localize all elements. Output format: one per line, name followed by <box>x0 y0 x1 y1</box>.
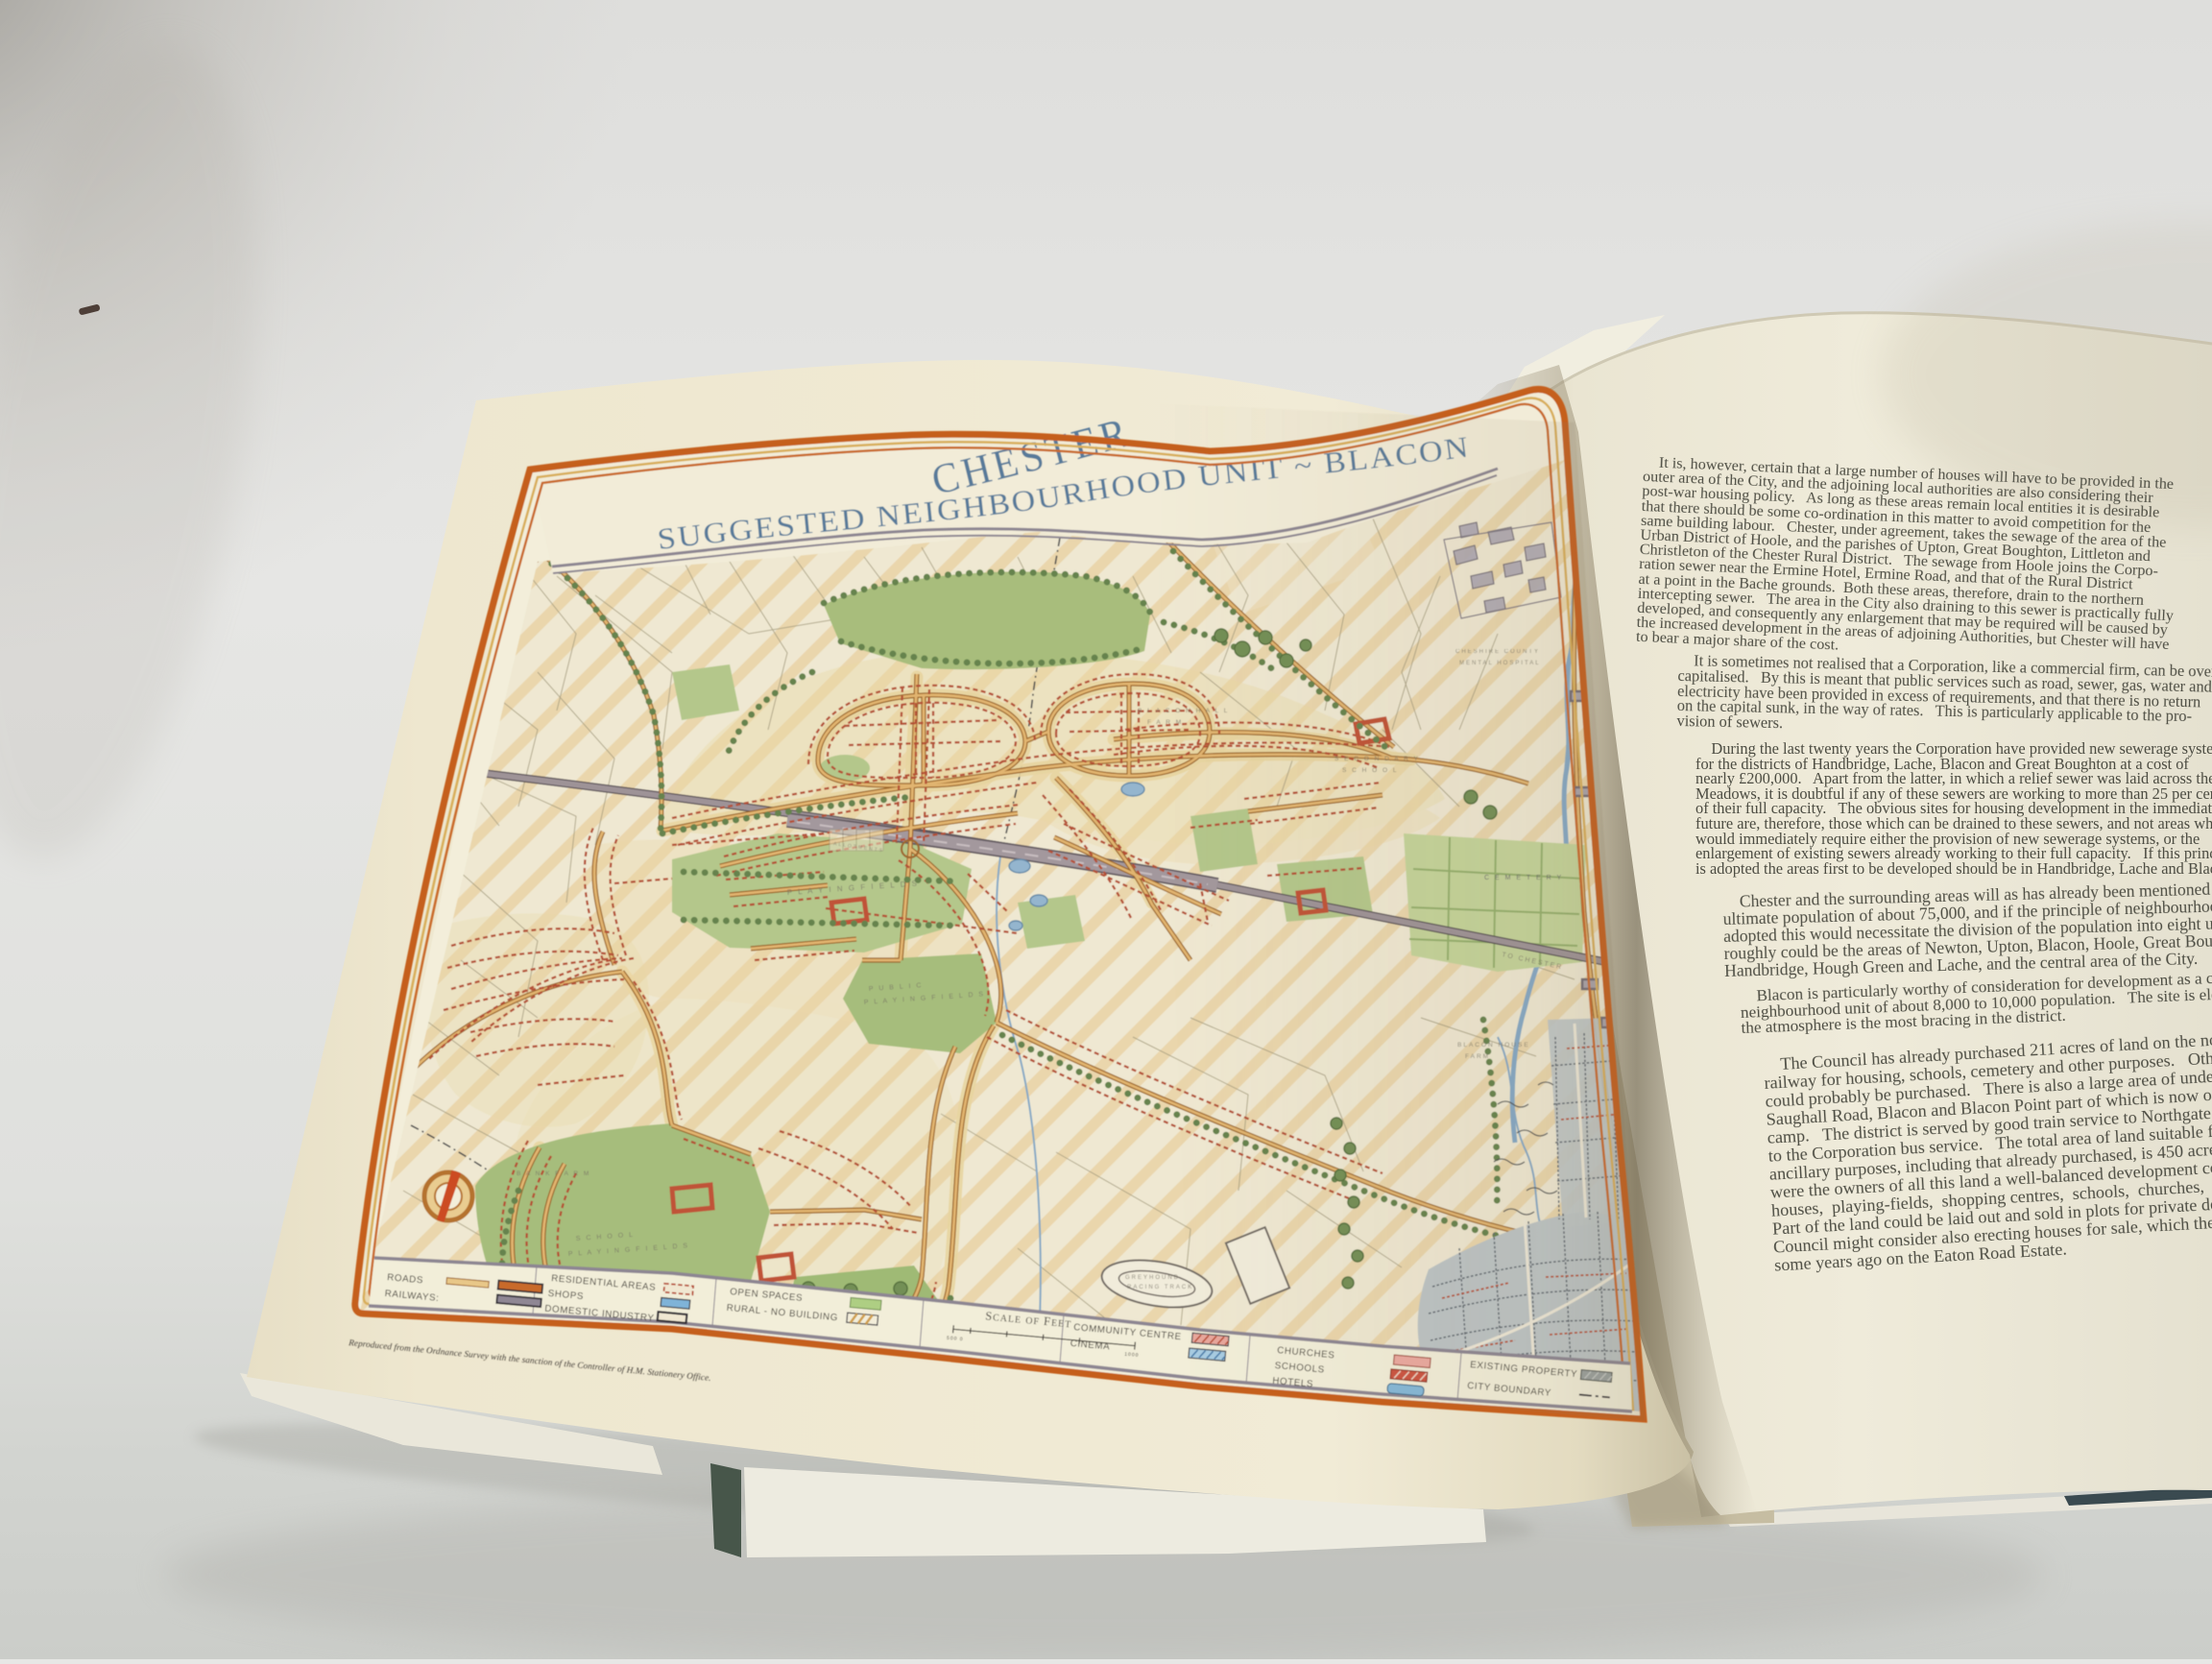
svg-text:GREYHOUND: GREYHOUND <box>1125 1275 1180 1281</box>
svg-text:B A N K F A R M: B A N K F A R M <box>517 1170 590 1177</box>
svg-text:RACING TRACK: RACING TRACK <box>1127 1285 1193 1290</box>
